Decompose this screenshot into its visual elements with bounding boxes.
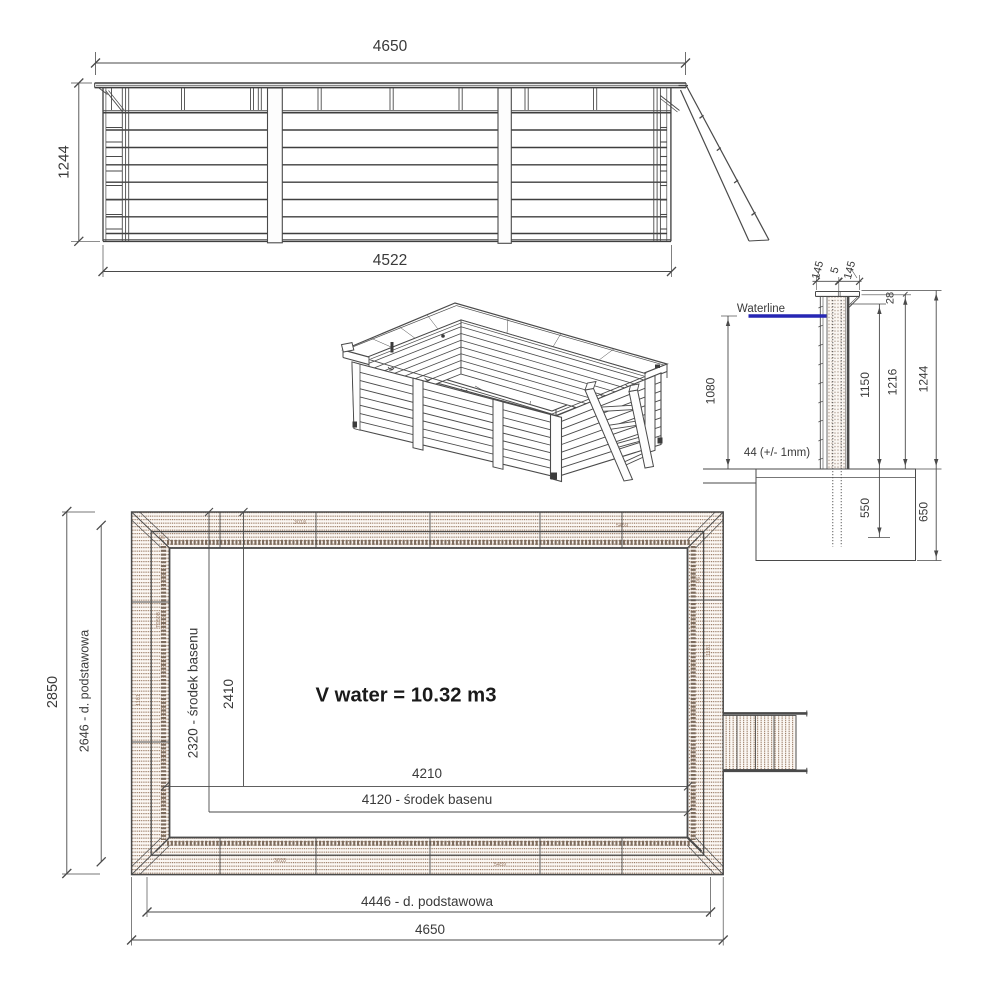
svg-text:1244: 1244 xyxy=(56,145,73,178)
svg-text:650: 650 xyxy=(917,502,931,522)
svg-text:4446 - d. podstawowa: 4446 - d. podstawowa xyxy=(361,894,494,909)
svg-text:145: 145 xyxy=(810,260,826,281)
svg-text:44 (+/- 1mm): 44 (+/- 1mm) xyxy=(744,447,810,459)
svg-text:28: 28 xyxy=(885,292,897,304)
svg-text:Waterline: Waterline xyxy=(737,303,785,315)
svg-text:1150: 1150 xyxy=(858,372,872,398)
svg-text:4650: 4650 xyxy=(373,38,408,55)
svg-text:T0508: T0508 xyxy=(156,612,162,628)
svg-text:1216: 1216 xyxy=(886,368,900,395)
svg-text:4522: 4522 xyxy=(373,252,407,269)
svg-text:145: 145 xyxy=(842,260,858,281)
svg-text:5459: 5459 xyxy=(494,862,506,868)
svg-text:2646 - d. podstawowa: 2646 - d. podstawowa xyxy=(78,630,92,752)
svg-text:3018: 3018 xyxy=(294,520,306,526)
svg-text:2410: 2410 xyxy=(221,679,236,709)
svg-text:5459: 5459 xyxy=(616,523,628,529)
svg-text:2850: 2850 xyxy=(45,676,61,708)
svg-text:1244: 1244 xyxy=(917,365,931,392)
svg-text:V water = 10.32 m3: V water = 10.32 m3 xyxy=(316,685,497,707)
svg-text:96: 96 xyxy=(159,535,165,541)
svg-text:4210: 4210 xyxy=(412,766,442,781)
svg-text:1080: 1080 xyxy=(704,377,718,404)
svg-text:2320 - środek basenu: 2320 - środek basenu xyxy=(186,628,201,759)
svg-text:5: 5 xyxy=(829,266,842,275)
svg-text:1181: 1181 xyxy=(136,694,142,706)
svg-text:3018: 3018 xyxy=(274,858,286,864)
svg-text:96: 96 xyxy=(696,577,702,583)
svg-text:1181: 1181 xyxy=(706,644,712,656)
svg-text:550: 550 xyxy=(858,498,872,518)
svg-text:4120 - środek basenu: 4120 - środek basenu xyxy=(362,792,493,807)
svg-text:4650: 4650 xyxy=(415,922,445,937)
